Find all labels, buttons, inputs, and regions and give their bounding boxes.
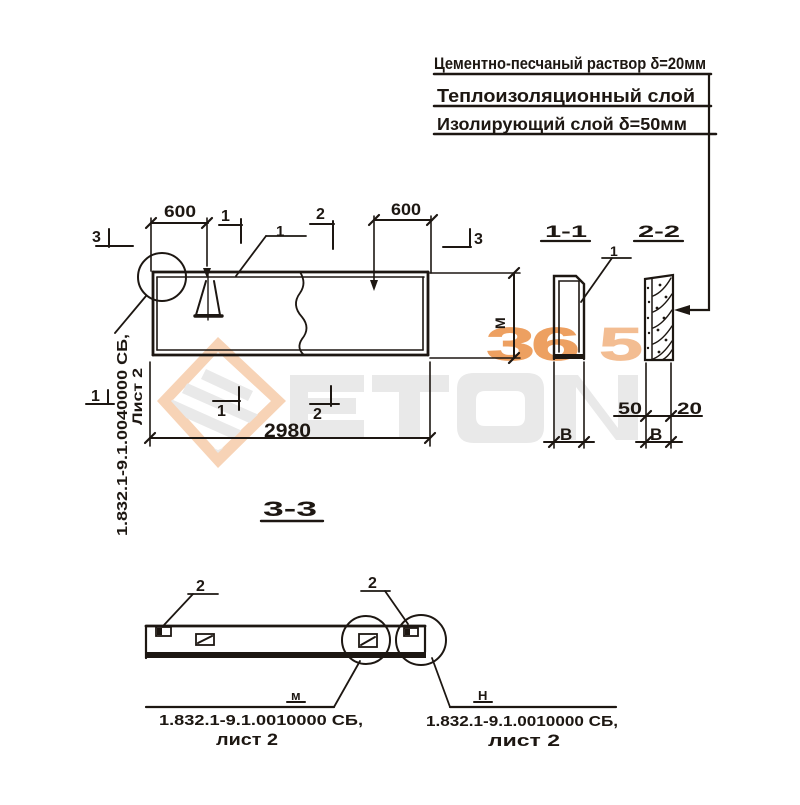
svg-text:лист 2: лист 2 [488, 732, 560, 750]
svg-text:1-1: 1-1 [545, 222, 587, 241]
svg-text:Цементно-песчаный раствор δ=20: Цементно-песчаный раствор δ=20мм [434, 55, 706, 73]
svg-text:6: 6 [531, 318, 580, 370]
svg-text:2: 2 [196, 578, 205, 595]
svg-text:В: В [650, 425, 662, 444]
svg-text:20: 20 [677, 399, 702, 418]
svg-text:2: 2 [313, 406, 322, 423]
svg-text:Н: Н [478, 688, 487, 703]
svg-text:3-3: 3-3 [263, 498, 317, 521]
svg-text:600: 600 [164, 202, 196, 221]
svg-text:Теплоизоляционный слой: Теплоизоляционный слой [437, 86, 695, 106]
svg-text:м: м [291, 688, 301, 703]
svg-text:Лист 2: Лист 2 [130, 368, 145, 425]
svg-text:2-2: 2-2 [638, 222, 680, 241]
svg-text:1.832.1-9.1.0010000 СБ,: 1.832.1-9.1.0010000 СБ, [159, 712, 363, 729]
svg-text:В: В [560, 425, 572, 444]
svg-text:2: 2 [316, 206, 325, 223]
svg-text:1.832.1-9.1.0040000 СБ,: 1.832.1-9.1.0040000 СБ, [115, 334, 131, 536]
svg-text:лист 2: лист 2 [216, 731, 278, 749]
svg-text:1.832.1-9.1.0010000 СБ,: 1.832.1-9.1.0010000 СБ, [426, 713, 618, 730]
svg-text:3: 3 [92, 229, 101, 246]
svg-text:2980: 2980 [264, 421, 311, 442]
svg-text:1: 1 [221, 208, 230, 225]
svg-text:3: 3 [474, 231, 483, 248]
svg-text:600: 600 [391, 200, 421, 219]
svg-text:1: 1 [276, 223, 284, 240]
svg-text:1: 1 [217, 403, 226, 420]
svg-text:1: 1 [91, 388, 100, 405]
svg-text:50: 50 [618, 399, 642, 418]
svg-text:5: 5 [599, 318, 643, 370]
svg-text:2: 2 [368, 575, 377, 592]
svg-text:Изолирующий слой δ=50мм: Изолирующий слой δ=50мм [437, 114, 687, 134]
svg-text:М: М [492, 317, 508, 329]
svg-text:1: 1 [610, 243, 618, 259]
